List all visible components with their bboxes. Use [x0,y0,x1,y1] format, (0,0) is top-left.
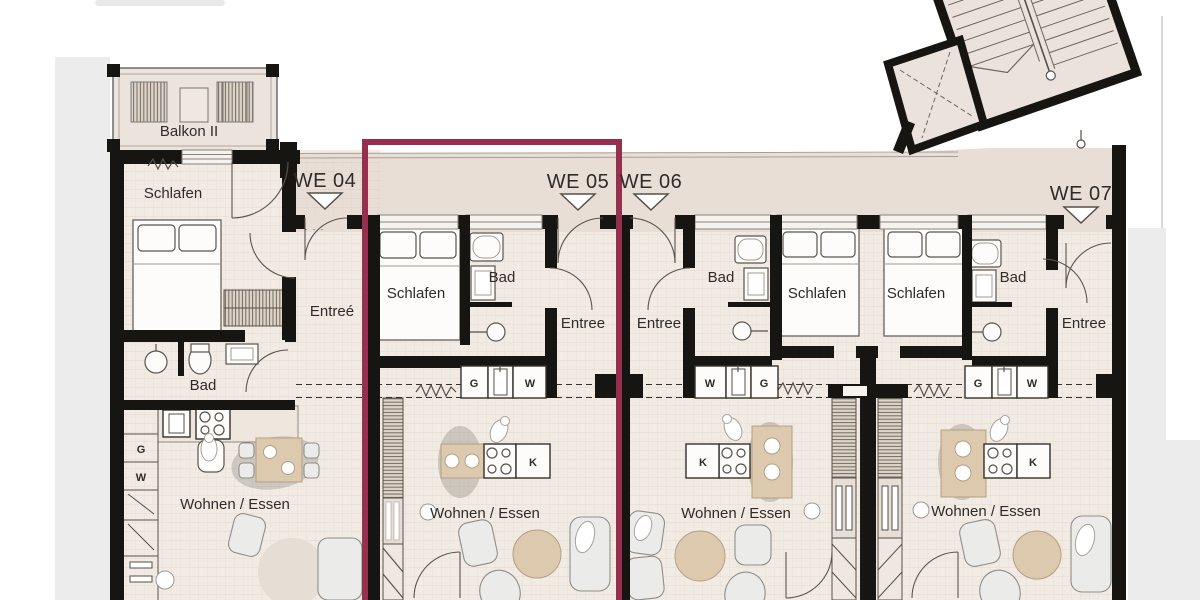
closet-w-we06: W [705,378,716,390]
dining-table-we04 [256,438,302,482]
room-label-living-we05: Wohnen / Essen [430,505,540,522]
kitchen-k-we06: K [699,457,707,469]
floor-lamp-we07 [913,502,929,518]
corridor-marker [1077,140,1085,148]
dining-table-we06 [752,426,792,498]
room-label-living-we07: Wohnen / Essen [931,503,1041,520]
unit-label-we05: WE 05 [547,171,610,193]
room-label-schlafen-we06: Schlafen [788,285,846,302]
floor-plan-svg: Balkon II WE 04 WE 05 WE 06 WE 07 Schlaf… [0,0,1200,600]
coffee-table-we05 [513,530,561,578]
closet-w-we05: W [525,378,536,390]
room-label-bad-we06: Bad [708,269,735,286]
closet-g-we04: G [137,444,146,456]
bed-we07-left [884,228,963,336]
balcony-label: Balkon II [160,123,218,140]
bed-we05 [376,228,460,340]
room-label-living-we04: Wohnen / Essen [180,496,290,513]
room-label-entree-we07: Entree [1062,315,1106,332]
entry-door-gap-we06 [633,215,675,229]
room-label-schlafen-we07: Schlafen [887,285,945,302]
closet-w-we07: W [1027,378,1038,390]
unit-label-we07: WE 07 [1050,183,1113,205]
kitchen-k-we07: K [1029,457,1037,469]
sofa-we06 [735,525,771,565]
balcony-chair [131,82,167,122]
kitchen-k-we05: K [529,457,537,469]
left-margin-strip [55,57,110,600]
corridor-windows [305,215,1106,229]
right-margin-strip-lower [1166,440,1200,600]
right-margin-strip [1128,228,1166,600]
room-label-schlafen-we05: Schlafen [387,285,445,302]
unit-label-we06: WE 06 [620,171,683,193]
entry-door-gap-we04 [305,215,347,229]
unit-label-we04: WE 04 [294,170,357,192]
room-label-bad-we04: Bad [190,377,217,394]
armchair-we06 [625,555,665,600]
room-label-living-we06: Wohnen / Essen [681,505,791,522]
sofa-we04 [318,538,362,600]
room-label-bad-we07: Bad [1000,269,1027,286]
room-label-entree-we06: Entree [637,315,681,332]
balcony-chair [217,82,253,122]
bed-we06 [779,228,859,336]
coffee-table-we06 [675,531,725,581]
entry-door-gap-we05 [558,215,600,229]
cropped-top-text-fragment [95,0,225,6]
dining-table-we07 [941,430,986,497]
wardrobe-strip-we05 [383,398,403,600]
closet-g-we06: G [760,378,769,390]
room-label-bad-we05: Bad [489,269,516,286]
room-label-entree-we05: Entree [561,315,605,332]
closet-w-we04: W [136,472,147,484]
closet-g-we05: G [470,378,479,390]
bed-we04 [133,220,221,336]
floor-lamp-we06 [804,503,820,519]
room-label-schlafen-we04: Schlafen [144,185,202,202]
closet-g-we07: G [974,378,983,390]
floor-lamp-we04 [156,571,174,589]
coffee-table-we07 [1013,531,1061,579]
balcony-table [180,88,208,122]
room-label-entree-we04: Entreé [310,303,354,320]
